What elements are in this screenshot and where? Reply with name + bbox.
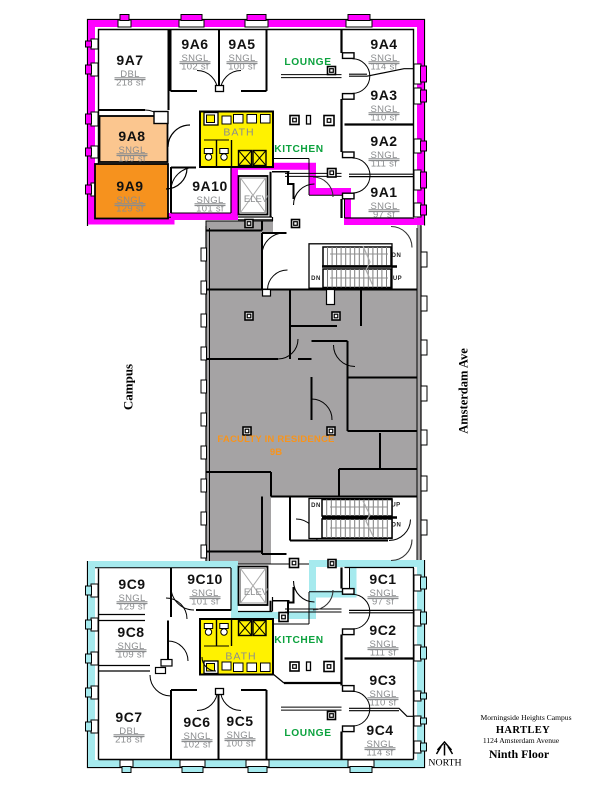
svg-text:9C9: 9C9: [118, 576, 145, 592]
svg-text:NORTH: NORTH: [428, 758, 461, 769]
svg-text:9B: 9B: [270, 447, 282, 458]
svg-text:KITCHEN: KITCHEN: [274, 635, 323, 646]
svg-text:Ninth Floor: Ninth Floor: [489, 747, 550, 761]
svg-text:9C1: 9C1: [369, 571, 396, 587]
svg-text:LOUNGE: LOUNGE: [284, 728, 331, 739]
svg-text:UP: UP: [391, 503, 400, 509]
svg-text:9C10: 9C10: [187, 571, 222, 587]
svg-text:9A3: 9A3: [370, 87, 397, 103]
svg-text:HARTLEY: HARTLEY: [496, 725, 550, 736]
svg-text:BATH: BATH: [225, 651, 256, 663]
svg-text:ELEV: ELEV: [244, 587, 269, 598]
svg-text:9A8: 9A8: [118, 128, 145, 144]
svg-text:Campus: Campus: [121, 364, 136, 410]
svg-text:9A5: 9A5: [228, 36, 255, 52]
svg-text:DN: DN: [392, 253, 402, 259]
svg-text:BATH: BATH: [223, 127, 254, 139]
svg-text:9A9: 9A9: [116, 178, 143, 194]
svg-text:9C3: 9C3: [369, 672, 396, 688]
svg-text:9C6: 9C6: [183, 714, 210, 730]
svg-text:9C2: 9C2: [369, 622, 396, 638]
svg-text:FACULTY IN RESIDENCE: FACULTY IN RESIDENCE: [217, 434, 334, 445]
svg-text:9C7: 9C7: [115, 709, 142, 725]
svg-text:Amsterdam Ave: Amsterdam Ave: [457, 348, 471, 434]
svg-text:ELEV: ELEV: [244, 194, 269, 205]
svg-text:9A4: 9A4: [370, 36, 397, 52]
svg-text:LOUNGE: LOUNGE: [284, 57, 331, 68]
svg-text:DN: DN: [392, 523, 402, 529]
svg-text:9C8: 9C8: [117, 624, 144, 640]
svg-text:9C4: 9C4: [366, 722, 393, 738]
svg-text:9A1: 9A1: [370, 184, 397, 200]
svg-text:DN: DN: [311, 503, 321, 509]
svg-text:UP: UP: [393, 276, 402, 282]
svg-text:9A7: 9A7: [116, 52, 143, 68]
svg-text:1124 Amsterdam Avenue: 1124 Amsterdam Avenue: [483, 736, 560, 745]
svg-text:9C5: 9C5: [226, 713, 253, 729]
svg-text:DN: DN: [311, 276, 321, 282]
svg-text:9A6: 9A6: [181, 36, 208, 52]
svg-text:9A10: 9A10: [192, 178, 227, 194]
svg-text:KITCHEN: KITCHEN: [274, 144, 323, 155]
svg-text:9A2: 9A2: [370, 133, 397, 149]
svg-text:Morningside Heights Campus: Morningside Heights Campus: [480, 713, 571, 722]
